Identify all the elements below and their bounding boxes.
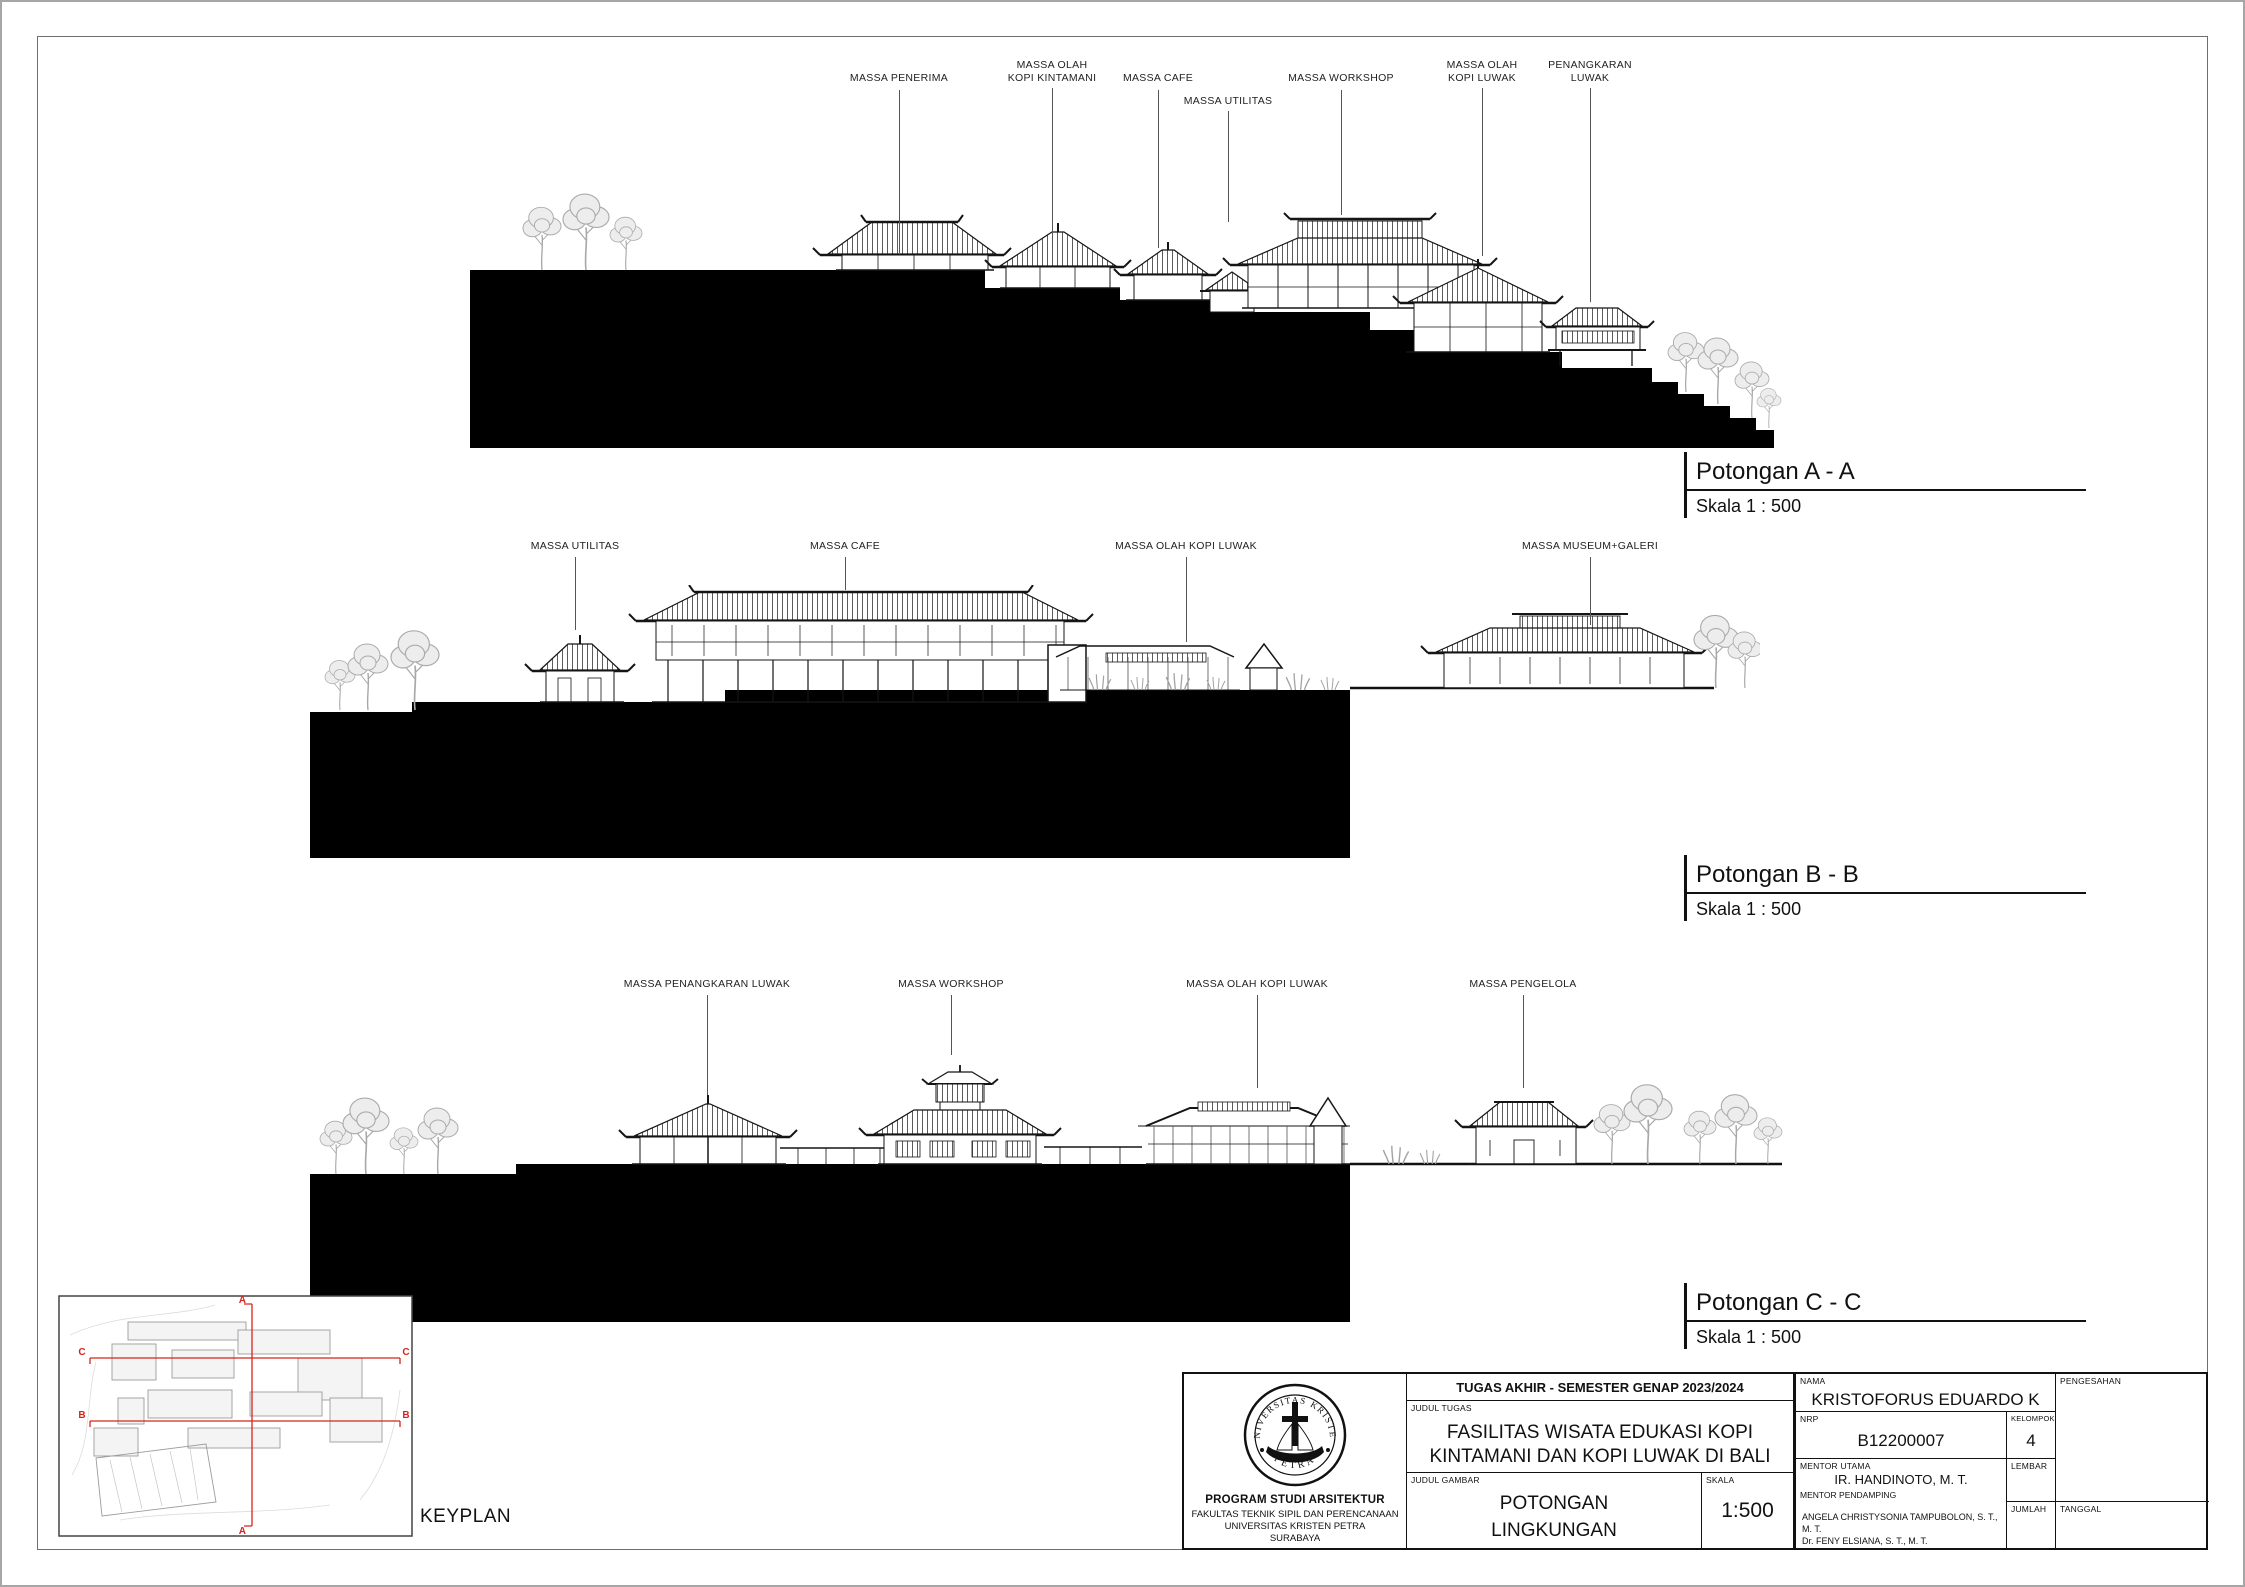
tree xyxy=(1624,1085,1672,1164)
building-workshop-c xyxy=(859,1065,1061,1164)
section-c-title-rule xyxy=(1684,1320,2086,1322)
label-leader-line xyxy=(1590,557,1591,625)
judul-tugas-label: JUDUL TUGAS xyxy=(1411,1403,1472,1413)
label-leader-line xyxy=(951,995,952,1055)
tree xyxy=(1757,388,1781,428)
nrp-cell: NRP B12200007 xyxy=(1796,1412,2007,1459)
section-c-scale: Skala 1 : 500 xyxy=(1696,1327,1801,1348)
assignment-header: TUGAS AKHIR - SEMESTER GENAP 2023/2024 xyxy=(1407,1374,1793,1400)
shrub xyxy=(1166,673,1189,690)
judul-gambar-cell: JUDUL GAMBAR POTONGAN LINGKUNGAN xyxy=(1407,1473,1702,1548)
shrub xyxy=(1207,677,1225,690)
building-utilitas-b xyxy=(525,635,635,702)
nama-label: NAMA xyxy=(1800,1376,1825,1386)
tree xyxy=(418,1108,458,1174)
shrub xyxy=(1131,677,1149,690)
tree xyxy=(563,194,609,270)
massa-label: MASSA UTILITAS xyxy=(465,540,685,553)
massa-label: MASSA PENANGKARAN LUWAK xyxy=(597,978,817,991)
massa-label: MASSA UTILITAS xyxy=(1118,95,1338,108)
keyplan-title: KEYPLAN xyxy=(420,1506,511,1528)
tree xyxy=(1684,1111,1716,1164)
lembar-cell: LEMBAR xyxy=(2007,1459,2056,1502)
section-b-drawing xyxy=(300,585,1760,865)
tree xyxy=(1754,1118,1782,1164)
label-leader-line xyxy=(1052,88,1053,248)
section-a-title-bar xyxy=(1684,452,1687,518)
massa-label: MASSA MUSEUM+GALERI xyxy=(1480,540,1700,553)
building-museum-galeri xyxy=(1421,614,1709,688)
judul-gambar-label: JUDUL GAMBAR xyxy=(1411,1475,1480,1485)
keyplan-drawing: A A C C B B xyxy=(58,1295,414,1538)
judul-tugas-cell: JUDUL TUGAS FASILITAS WISATA EDUKASI KOP… xyxy=(1407,1401,1793,1473)
title-block: UNIVERSITAS KRISTEN PETRA PROGRAM STUDI … xyxy=(1182,1372,2208,1550)
label-leader-line xyxy=(1590,88,1591,302)
section-a-scale: Skala 1 : 500 xyxy=(1696,496,1801,517)
pengesahan-cell: PENGESAHAN xyxy=(2056,1374,2209,1502)
label-leader-line xyxy=(1341,90,1342,215)
judul-gambar-value: POTONGAN LINGKUNGAN xyxy=(1407,1473,1701,1554)
tree xyxy=(391,631,439,710)
keyplan-marker-a-top: A xyxy=(239,1295,246,1306)
building-pengelola xyxy=(1455,1102,1593,1164)
nama-cell: NAMA KRISTOFORUS EDUARDO K xyxy=(1796,1374,2056,1412)
identity-block: NAMA KRISTOFORUS EDUARDO K NRP B12200007… xyxy=(1793,1374,2206,1548)
shrub xyxy=(1089,674,1111,690)
shrub xyxy=(1286,673,1309,690)
nrp-label: NRP xyxy=(1800,1414,1819,1424)
kelompok-label: KELOMPOK xyxy=(2011,1414,2055,1423)
label-leader-line xyxy=(1186,557,1187,642)
section-c-title-bar xyxy=(1684,1283,1687,1349)
massa-label: MASSA OLAH KOPI LUWAK xyxy=(1147,978,1367,991)
building-penangkaran-c xyxy=(619,1095,797,1164)
tanggal-label: TANGGAL xyxy=(2060,1504,2101,1514)
label-leader-line xyxy=(1523,995,1524,1088)
tree xyxy=(1715,1095,1757,1164)
walkway-2 xyxy=(1044,1147,1142,1164)
tree xyxy=(610,217,642,270)
massa-label: MASSA OLAH KOPI LUWAK xyxy=(1076,540,1296,553)
ground-mass-c xyxy=(310,1164,1350,1322)
walkway-1 xyxy=(780,1148,886,1164)
building-olah-kopi-kintamani xyxy=(985,223,1131,288)
jumlah-cell: JUMLAH xyxy=(2007,1502,2056,1548)
institution-faculty: FAKULTAS TEKNIK SIPIL DAN PERENCANAAN xyxy=(1184,1509,1406,1520)
label-leader-line xyxy=(845,557,846,590)
shrub xyxy=(1420,1150,1440,1164)
label-leader-line xyxy=(575,557,576,630)
keyplan-marker-c-right: C xyxy=(402,1347,409,1358)
university-seal: UNIVERSITAS KRISTEN PETRA xyxy=(1240,1380,1350,1490)
massa-label: PENANGKARAN LUWAK xyxy=(1480,59,1700,85)
institution-cell: UNIVERSITAS KRISTEN PETRA PROGRAM STUDI … xyxy=(1184,1374,1407,1548)
keyplan-marker-b-right: B xyxy=(402,1410,409,1421)
mentor-pendamping-value: ANGELA CHRISTYSONIA TAMPUBOLON, S. T., M… xyxy=(1802,1511,2006,1547)
label-leader-line xyxy=(1482,88,1483,256)
ground-mass-b xyxy=(310,690,1350,858)
header-cell: TUGAS AKHIR - SEMESTER GENAP 2023/2024 xyxy=(1407,1374,1793,1401)
tanggal-cell: TANGGAL xyxy=(2056,1502,2209,1548)
massa-label: MASSA PENGELOLA xyxy=(1413,978,1633,991)
mentor-utama-label: MENTOR UTAMA xyxy=(1800,1461,1871,1471)
building-penerima xyxy=(813,215,1011,270)
massa-label: MASSA WORKSHOP xyxy=(841,978,1061,991)
ground-mass-a xyxy=(470,270,1774,448)
mentor-cell: MENTOR UTAMA IR. HANDINOTO, M. T. MENTOR… xyxy=(1796,1459,2007,1548)
section-b-scale: Skala 1 : 500 xyxy=(1696,899,1801,920)
institution-city: SURABAYA xyxy=(1184,1533,1406,1544)
label-leader-line xyxy=(899,90,900,253)
skala-label: SKALA xyxy=(1706,1475,1734,1485)
jumlah-label: JUMLAH xyxy=(2011,1504,2046,1514)
keyplan-marker-a-bottom: A xyxy=(239,1526,246,1537)
label-leader-line xyxy=(1228,111,1229,222)
drawing-sheet: MASSA PENERIMA MASSA OLAH KOPI KINTAMANI… xyxy=(0,0,2245,1587)
label-leader-line xyxy=(1257,995,1258,1088)
section-a-title: Potongan A - A xyxy=(1696,458,1855,486)
pengesahan-label: PENGESAHAN xyxy=(2060,1376,2121,1386)
tree xyxy=(1728,632,1760,688)
label-leader-line xyxy=(707,995,708,1095)
lembar-label: LEMBAR xyxy=(2011,1461,2047,1471)
section-b-title-rule xyxy=(1684,892,2086,894)
section-c-drawing xyxy=(300,1040,1790,1325)
mentor-utama-value: IR. HANDINOTO, M. T. xyxy=(1796,1472,2006,1487)
massa-label: MASSA CAFE xyxy=(735,540,955,553)
section-c-title: Potongan C - C xyxy=(1696,1289,1861,1317)
kelompok-cell: KELOMPOK 4 xyxy=(2007,1412,2056,1459)
nrp-value: B12200007 xyxy=(1796,1412,2006,1464)
building-olah-kopi-luwak-c xyxy=(1138,1098,1350,1164)
building-cafe-b xyxy=(629,585,1093,702)
keyplan-marker-c-left: C xyxy=(78,1347,85,1358)
shrub xyxy=(1321,677,1339,690)
section-b-title: Potongan B - B xyxy=(1696,861,1859,889)
skala-cell: SKALA 1:500 xyxy=(1702,1473,1793,1548)
institution-program: PROGRAM STUDI ARSITEKTUR xyxy=(1184,1494,1406,1506)
label-leader-line xyxy=(1158,90,1159,248)
mentor-pendamping-label: MENTOR PENDAMPING xyxy=(1800,1490,1896,1500)
section-a-title-rule xyxy=(1684,489,2086,491)
tree xyxy=(390,1128,418,1174)
institution-university: UNIVERSITAS KRISTEN PETRA xyxy=(1184,1521,1406,1532)
tree xyxy=(523,207,561,270)
stair-tower xyxy=(1048,645,1086,702)
keyplan-marker-b-left: B xyxy=(78,1410,85,1421)
section-b-title-bar xyxy=(1684,855,1687,921)
shrub xyxy=(1383,1146,1408,1164)
